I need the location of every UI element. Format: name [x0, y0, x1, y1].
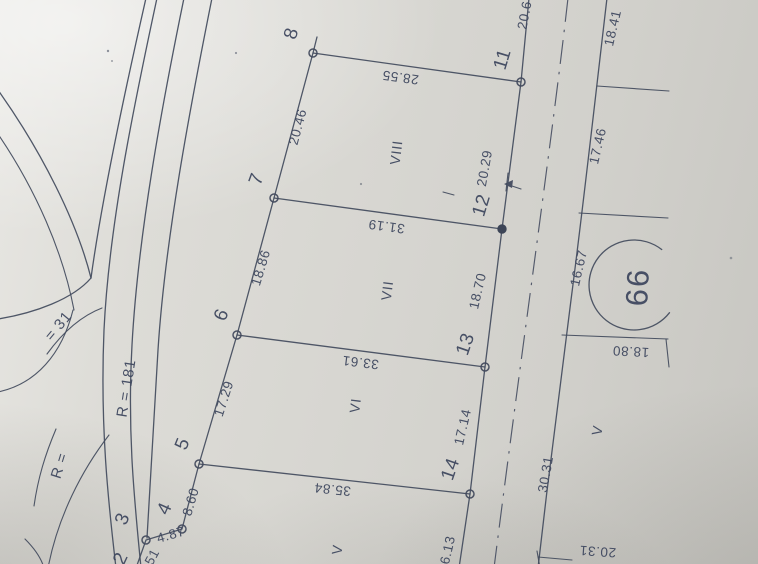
road-curve-line2 [103, 0, 157, 564]
dim-11-12: 20.29 [474, 149, 495, 188]
dim-5-6: 17.29 [211, 379, 237, 419]
paper-speck-1 [107, 50, 109, 52]
point-label-12: 12 [468, 192, 495, 219]
road-curve-line4 [147, 0, 212, 538]
dim-road-right-2: 17.46 [586, 126, 609, 165]
road-centerline [494, 0, 568, 564]
point-label-14: 14 [437, 455, 464, 483]
block-66-corner-tick [666, 339, 669, 367]
parcel-label-vii: VII [378, 279, 396, 301]
dim-14-down: 6.13 [437, 534, 458, 564]
dim-11-up: 20.6 [514, 0, 534, 31]
point-label-3: 3 [111, 510, 135, 528]
point-labels: 2 3 4 5 6 7 8 11 12 13 14 [109, 25, 516, 564]
dim-13-14: 17.14 [451, 407, 474, 446]
scanned-plat-photo: 2 3 4 5 6 7 8 11 12 13 14 51 4.87 8.60 1… [0, 0, 758, 564]
radius-label-main-road: R = 181 [114, 358, 140, 419]
stray-dash [443, 192, 454, 195]
dim-4-5: 8.60 [180, 486, 202, 518]
dim-6-13: 33.61 [341, 353, 379, 372]
dim-5-14: 35.84 [313, 480, 351, 499]
point-label-6: 6 [210, 306, 234, 324]
paper-speck-2 [111, 60, 113, 62]
paper-speck-4 [360, 183, 362, 185]
paper-speck-3 [235, 52, 237, 54]
survey-points [142, 49, 525, 544]
point-label-13: 13 [452, 330, 479, 358]
block-66-north-line [562, 335, 668, 339]
point-label-5: 5 [171, 435, 195, 453]
bottom-corner-tick-h [538, 557, 572, 560]
road-left-curves [0, 0, 212, 564]
stray-marks [107, 50, 733, 260]
dim-7-8: 20.46 [286, 107, 310, 146]
dim-road-right-5: 30.31 [535, 455, 556, 494]
parcel-label-v: V [328, 543, 345, 555]
corner-curve-c [25, 539, 44, 564]
point-label-2: 2 [109, 549, 133, 564]
dim-12-13: 18.70 [466, 271, 489, 310]
parcel-label-vi: VI [346, 397, 364, 414]
dim-3-4: 4.87 [155, 524, 187, 546]
dim-6-7: 18.86 [248, 248, 273, 288]
west-boundary-polyline [136, 37, 317, 564]
radius-label-corner-curve: R = [48, 451, 72, 481]
dim-road-right-3: 16.67 [567, 248, 590, 287]
radius-label-branch-curve: = 31 [41, 308, 75, 344]
parcel-label-viii: VIII [387, 139, 406, 166]
survey-point-12 [498, 225, 506, 233]
point-label-11: 11 [490, 46, 516, 72]
dim-road-right-6: 20.31 [579, 543, 617, 561]
frontage-tick-2 [579, 213, 668, 218]
paper-speck-5 [730, 257, 733, 260]
point-label-7: 7 [245, 170, 269, 188]
dim-road-right-4: 18.80 [612, 343, 650, 360]
parcel-label-v-across-road: V [588, 424, 606, 437]
dim-8-11: 28.55 [381, 67, 420, 87]
point-label-4: 4 [153, 499, 177, 518]
plat-drawing: 2 3 4 5 6 7 8 11 12 13 14 51 4.87 8.60 1… [0, 0, 758, 564]
road-curve-outer-top [0, 90, 91, 278]
point-label-8: 8 [280, 25, 303, 41]
block-number-label: 66 [619, 267, 656, 307]
road-curve-branch-a [0, 134, 74, 310]
dim-2-3: 51 [142, 546, 163, 564]
frontage-tick-1 [597, 86, 669, 91]
dim-7-12: 31.19 [367, 216, 406, 236]
